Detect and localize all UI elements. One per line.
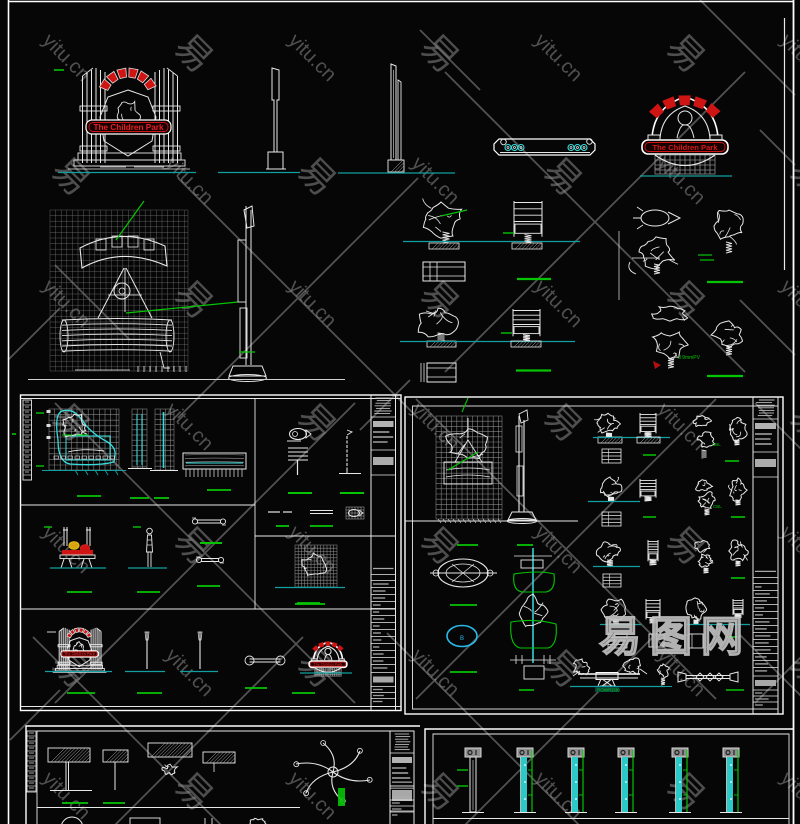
svg-text:The Children Park: The Children Park [314, 663, 343, 667]
svg-text:CBL: CBL [712, 442, 721, 447]
svg-text:B: B [460, 636, 464, 642]
svg-text:The Children Park: The Children Park [653, 143, 719, 152]
svg-text:CBL: CBL [713, 504, 722, 509]
svg-text:The Children Park: The Children Park [64, 652, 95, 656]
svg-text:The Children Park: The Children Park [93, 123, 164, 132]
svg-text:ROWRD30: ROWRD30 [597, 688, 620, 693]
svg-text:d 9mmPV: d 9mmPV [678, 355, 701, 361]
svg-text:易图网: 易图网 [599, 613, 752, 660]
